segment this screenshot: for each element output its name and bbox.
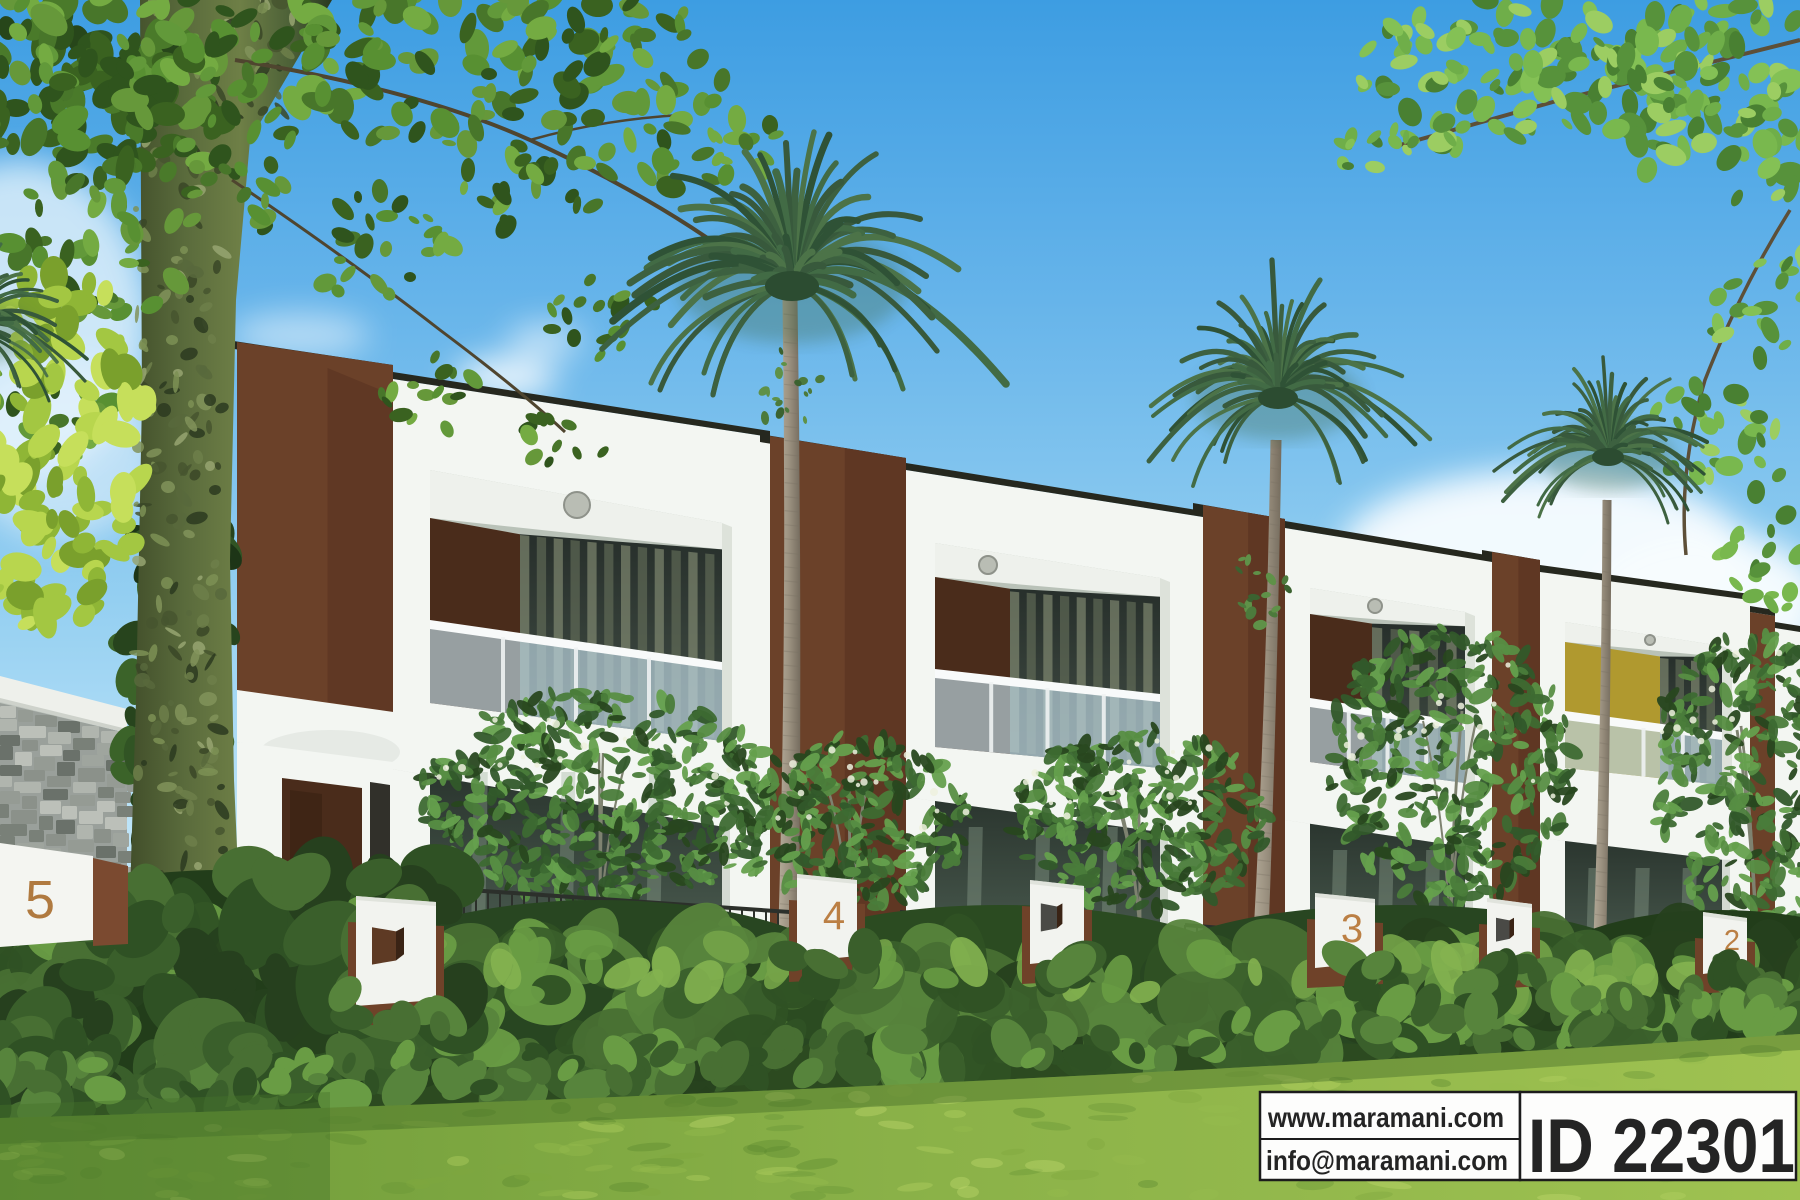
svg-text:5: 5 (25, 870, 55, 930)
svg-text:info@maramani.com: info@maramani.com (1266, 1145, 1508, 1176)
svg-text:4: 4 (823, 894, 845, 938)
svg-text:ID 22301: ID 22301 (1528, 1104, 1795, 1189)
svg-text:www.maramani.com: www.maramani.com (1267, 1102, 1504, 1133)
